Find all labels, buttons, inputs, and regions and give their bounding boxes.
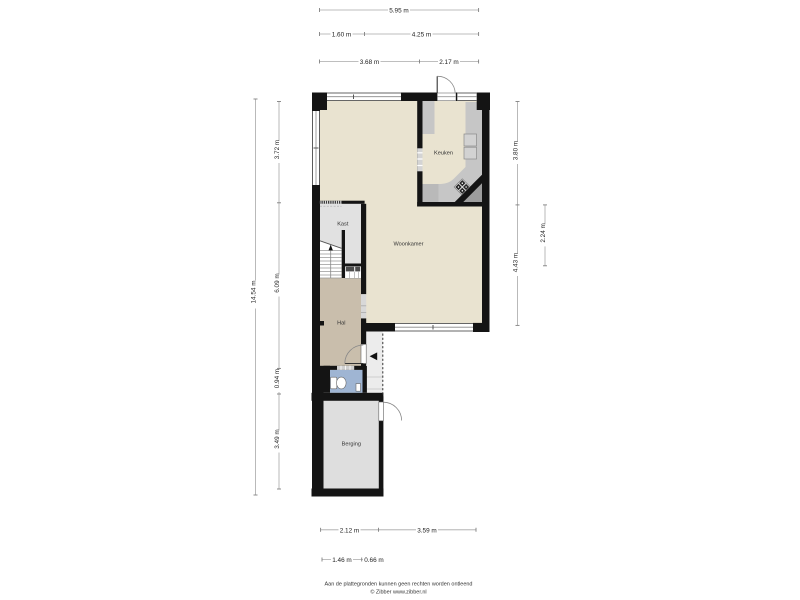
svg-text:1.46 m: 1.46 m (332, 557, 352, 564)
svg-text:0.94 m: 0.94 m (274, 369, 281, 389)
svg-text:© Zibber www.zibber.nl: © Zibber www.zibber.nl (370, 589, 426, 596)
svg-text:Keuken: Keuken (434, 150, 453, 156)
svg-text:2.12 m: 2.12 m (340, 527, 360, 534)
svg-text:Woonkamer: Woonkamer (393, 242, 423, 248)
svg-text:3.49 m: 3.49 m (274, 429, 281, 449)
svg-text:6.09 m: 6.09 m (274, 273, 281, 293)
svg-text:0.66 m: 0.66 m (364, 557, 384, 564)
svg-text:3.68 m: 3.68 m (360, 59, 380, 66)
svg-text:14.54 m: 14.54 m (251, 280, 258, 303)
svg-text:4.25 m: 4.25 m (412, 32, 432, 39)
svg-text:Aan de plattegronden kunnen ge: Aan de plattegronden kunnen geen rechten… (324, 582, 472, 588)
svg-text:Hal: Hal (337, 321, 345, 327)
svg-text:3.80 m: 3.80 m (513, 141, 520, 161)
svg-text:3.72 m: 3.72 m (274, 140, 281, 160)
svg-text:Berging: Berging (342, 441, 361, 447)
svg-text:2.17 m: 2.17 m (439, 59, 459, 66)
svg-text:2.24 m: 2.24 m (540, 223, 547, 243)
svg-text:1.60 m: 1.60 m (332, 32, 352, 39)
svg-text:5.95 m: 5.95 m (389, 8, 409, 15)
svg-text:Kast: Kast (337, 222, 349, 228)
svg-text:4.43 m: 4.43 m (513, 253, 520, 273)
svg-text:3.59 m: 3.59 m (417, 527, 437, 534)
